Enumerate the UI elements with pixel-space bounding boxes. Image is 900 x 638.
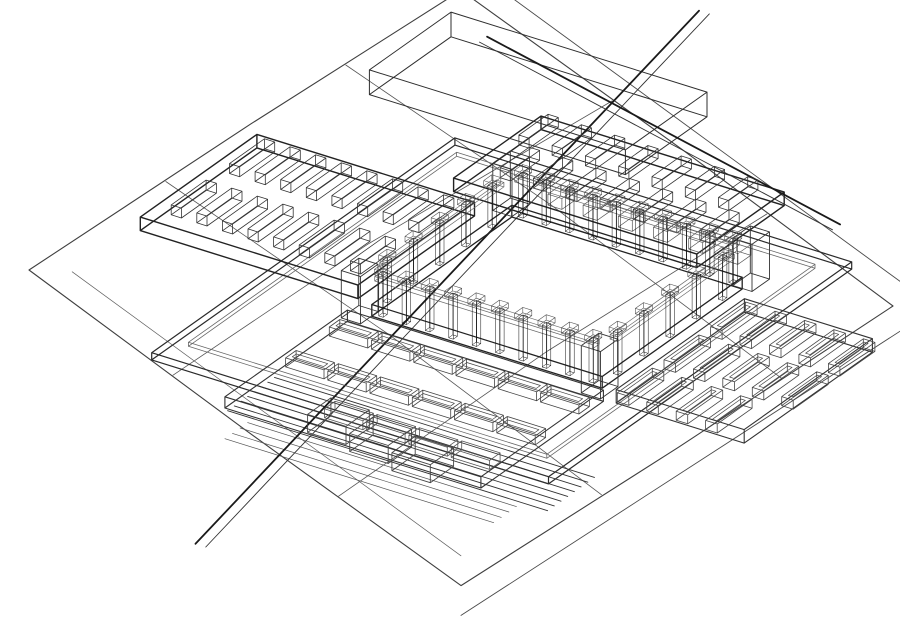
wire-path bbox=[358, 179, 403, 217]
wire-path bbox=[29, 0, 893, 586]
scene-lines bbox=[225, 423, 517, 523]
wire-path bbox=[454, 116, 785, 268]
wire-path bbox=[723, 353, 770, 390]
wireframe-canvas bbox=[0, 0, 900, 638]
wire-path bbox=[498, 372, 547, 401]
wire-path bbox=[248, 204, 293, 242]
wire-path bbox=[461, 0, 900, 615]
wire-path bbox=[676, 386, 723, 423]
wire-path bbox=[274, 212, 319, 250]
wire-path bbox=[541, 386, 590, 415]
wire-path bbox=[697, 274, 701, 319]
wire-path bbox=[414, 346, 463, 375]
wire-path bbox=[402, 281, 407, 324]
wire-path bbox=[171, 180, 216, 218]
wire-path bbox=[332, 171, 377, 209]
wire-path bbox=[225, 423, 517, 523]
scene-poly bbox=[166, 182, 602, 495]
wire-path bbox=[392, 436, 454, 483]
wire-path bbox=[466, 202, 470, 247]
wire-path bbox=[542, 325, 547, 368]
wire-path bbox=[449, 296, 454, 339]
wire-path bbox=[472, 303, 477, 346]
wire-path bbox=[255, 147, 300, 185]
scene-poly bbox=[29, 0, 893, 586]
wire-path bbox=[306, 163, 351, 201]
wire-path bbox=[230, 139, 275, 177]
scene-row bbox=[329, 320, 589, 415]
wire-path bbox=[456, 359, 505, 388]
wire-path bbox=[496, 311, 500, 354]
wire-path bbox=[281, 155, 326, 193]
wire-path bbox=[770, 320, 817, 357]
scene-poly bbox=[461, 0, 900, 615]
wire-path bbox=[799, 330, 846, 367]
wire-path bbox=[372, 333, 421, 362]
wireframe-viewport bbox=[0, 0, 900, 638]
wire-path bbox=[329, 320, 378, 349]
wire-path bbox=[594, 338, 598, 383]
scene-row bbox=[664, 335, 828, 409]
scene-box bbox=[454, 116, 785, 268]
wire-path bbox=[299, 220, 344, 258]
wire-path bbox=[589, 340, 594, 383]
wire-path bbox=[222, 196, 267, 234]
scene-row bbox=[711, 302, 875, 376]
wire-path bbox=[519, 318, 524, 361]
scene-row bbox=[375, 264, 602, 344]
wire-path bbox=[166, 182, 602, 495]
